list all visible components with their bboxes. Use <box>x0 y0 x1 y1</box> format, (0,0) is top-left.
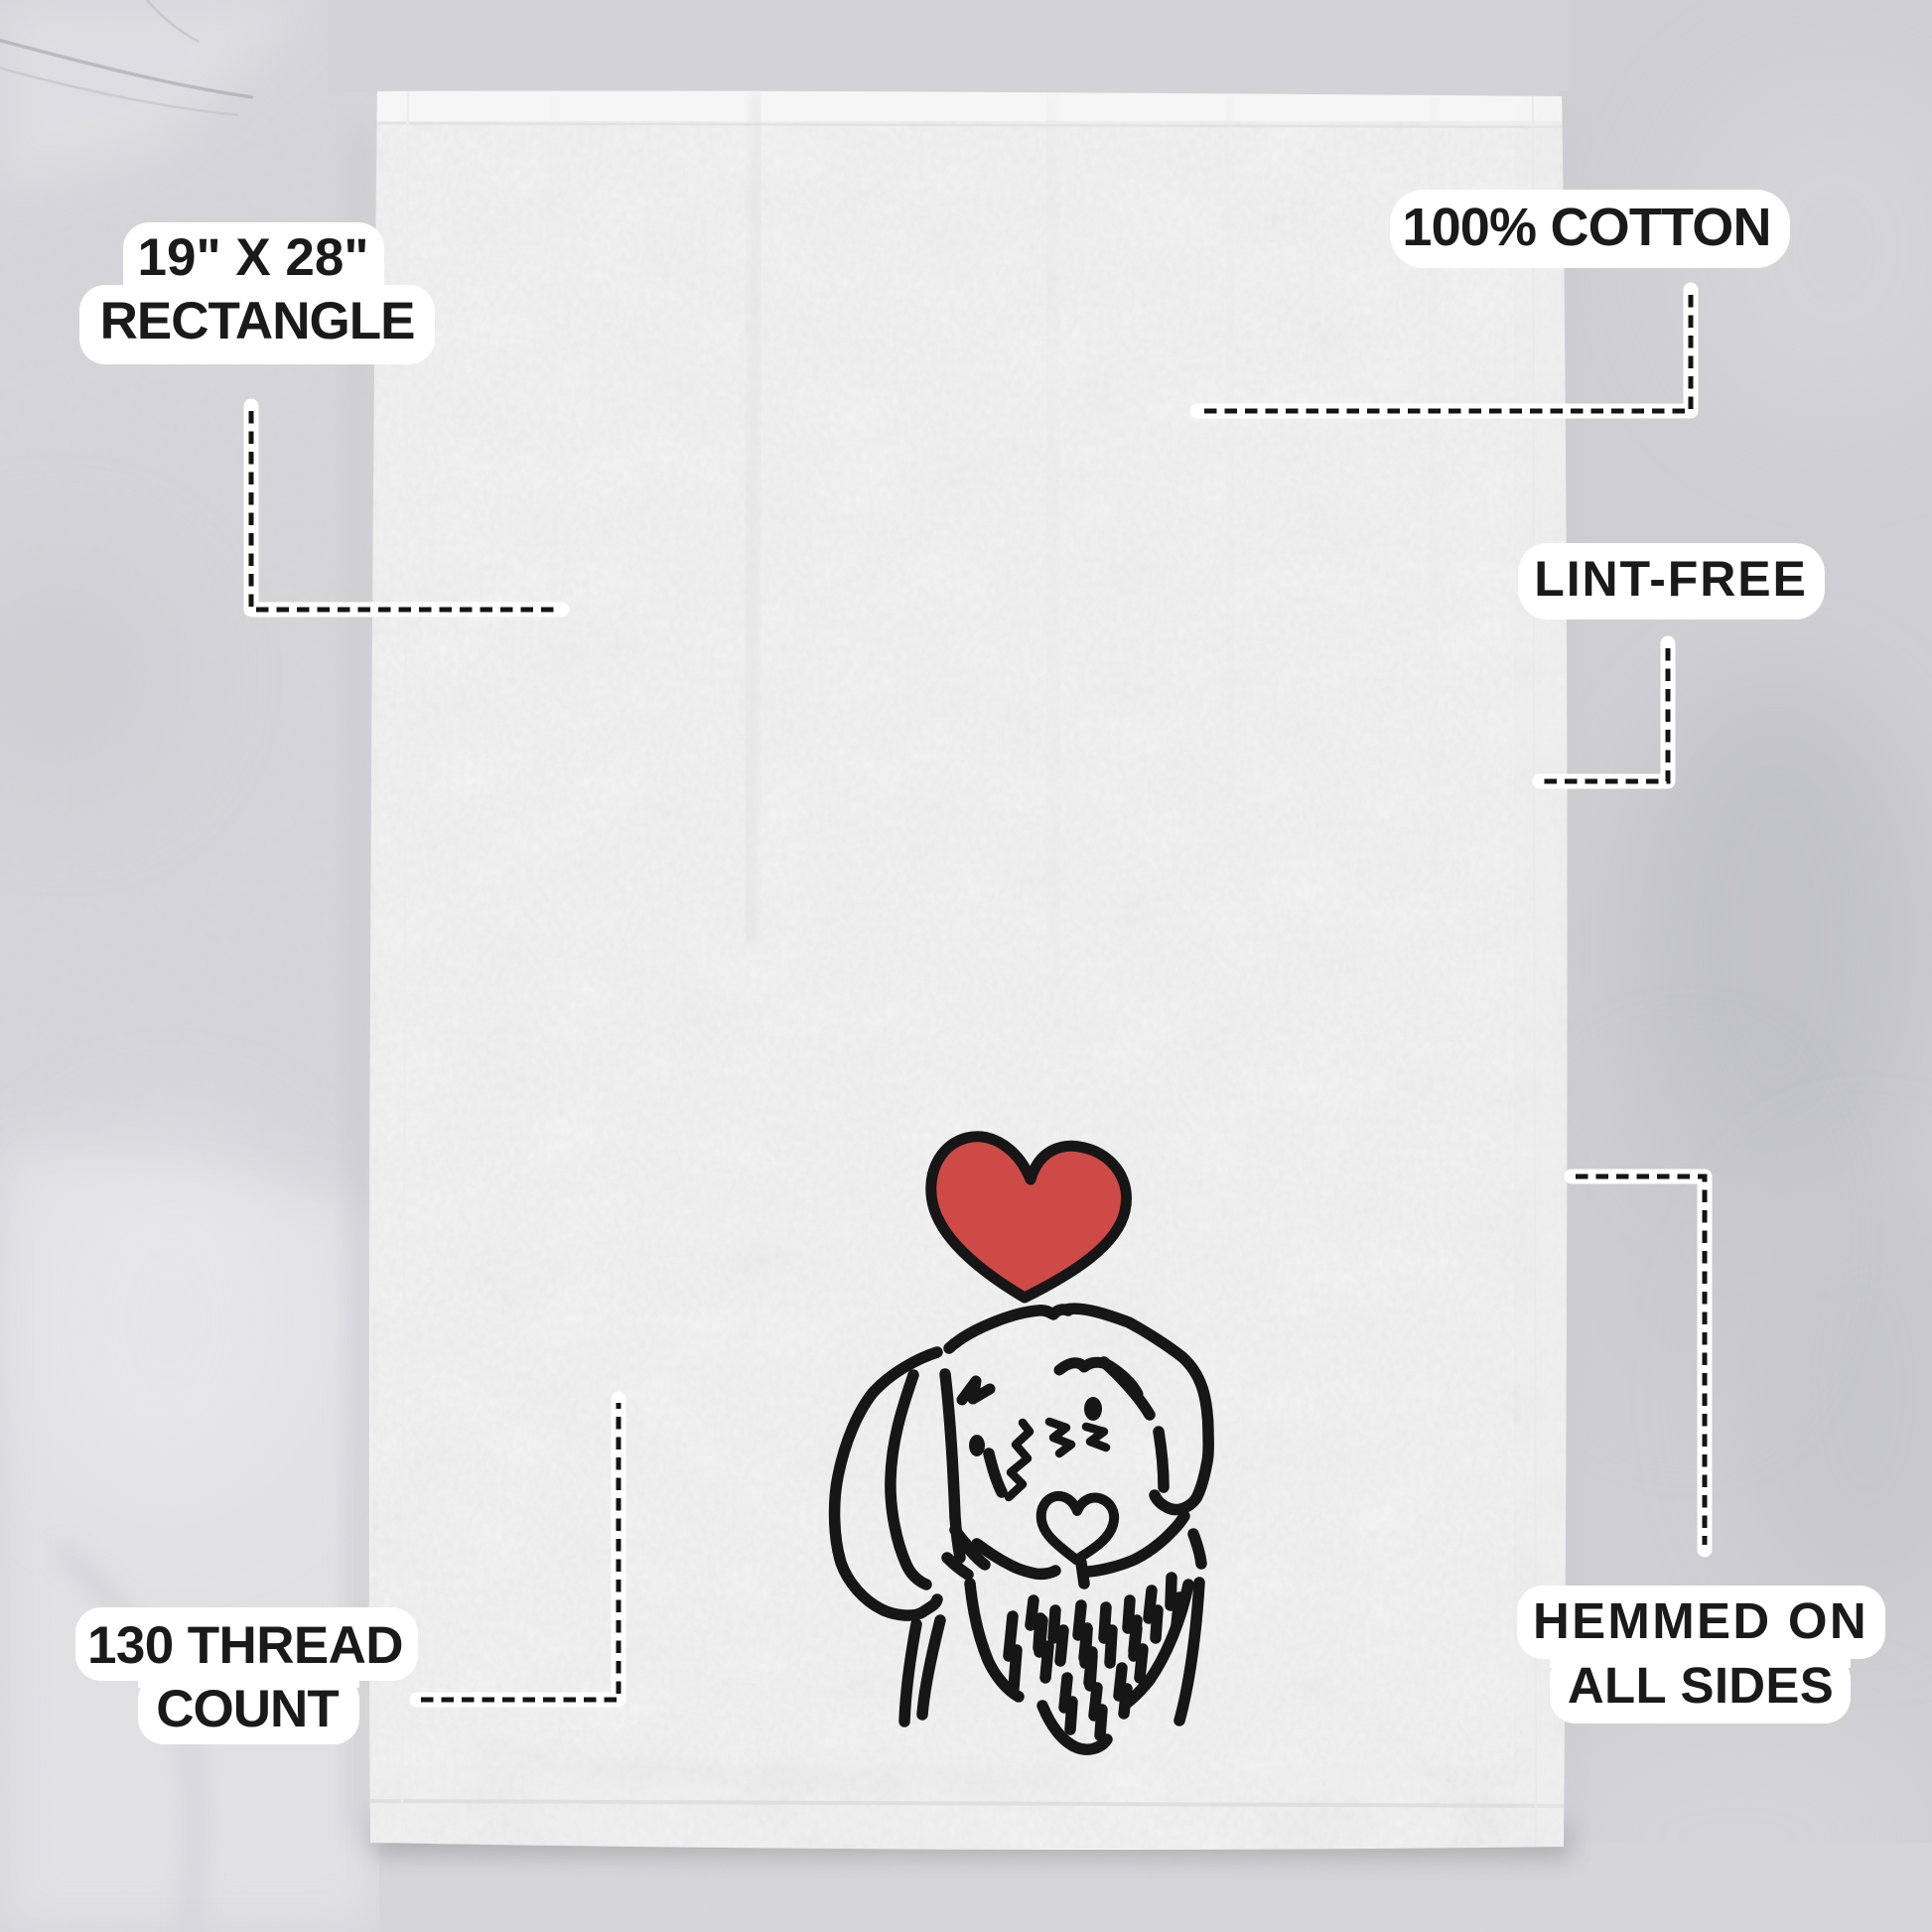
svg-text:HEMMED ON: HEMMED ON <box>1533 1592 1868 1649</box>
svg-text:19" X 28": 19" X 28" <box>138 228 369 287</box>
svg-text:100% COTTON: 100% COTTON <box>1402 198 1770 257</box>
svg-text:LINT-FREE: LINT-FREE <box>1534 551 1807 607</box>
svg-text:130 THREAD: 130 THREAD <box>87 1616 403 1675</box>
svg-text:RECTANGLE: RECTANGLE <box>100 292 415 350</box>
svg-text:ALL SIDES: ALL SIDES <box>1568 1657 1834 1714</box>
svg-text:COUNT: COUNT <box>156 1680 339 1738</box>
